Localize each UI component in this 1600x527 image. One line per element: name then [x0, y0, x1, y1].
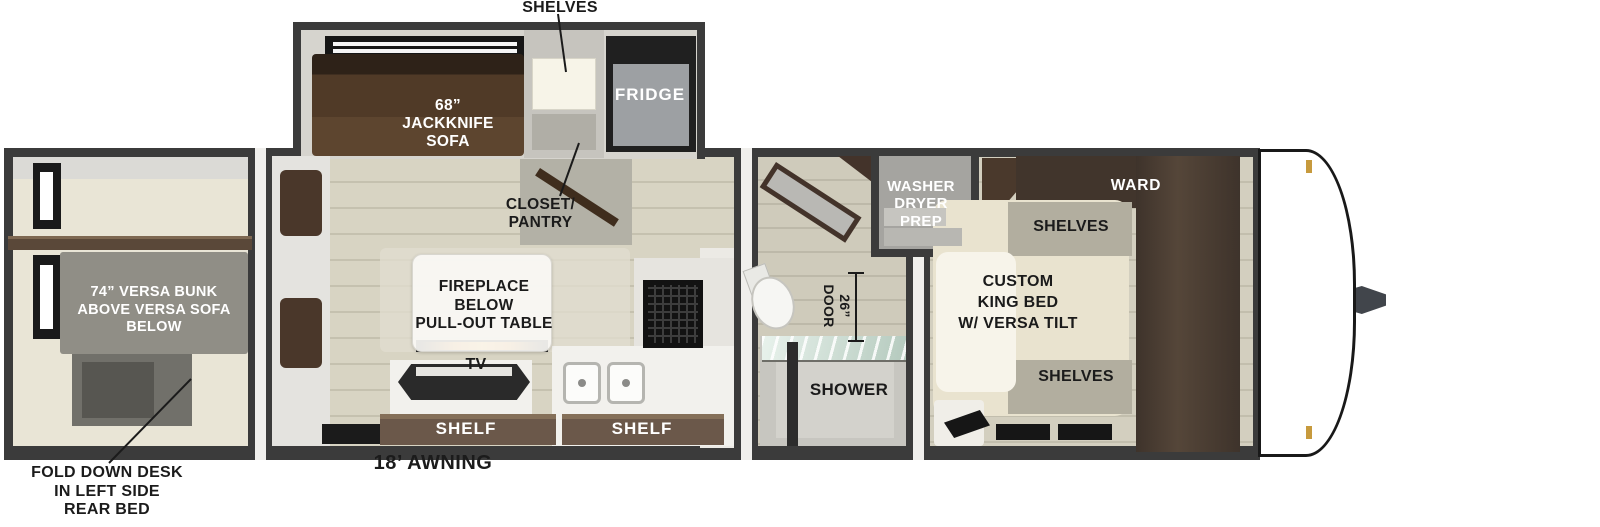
bedroom-mat-2	[996, 424, 1050, 440]
label-shelves-top: SHELVES	[505, 0, 615, 17]
label-awning: 18’ AWNING	[352, 452, 514, 475]
label-shower: SHOWER	[790, 380, 908, 400]
label-jackknife-sofa: 68” JACKKNIFE SOFA	[378, 97, 518, 150]
label-shelves-bed-bottom: SHELVES	[1017, 368, 1135, 386]
stove-grates	[648, 285, 698, 343]
label-ward: WARD	[1096, 177, 1176, 195]
label-tv: TV	[450, 356, 502, 374]
wardrobe-side	[1136, 156, 1240, 452]
stove	[643, 280, 703, 348]
floorplan-canvas: SHELVES 68” JACKKNIFE SOFA FRIDGE CLOSET…	[0, 0, 1600, 527]
sink-left	[563, 362, 601, 404]
label-washer-dryer-prep: WASHER DRYER PREP	[871, 178, 971, 230]
rear-shelf-bar	[8, 236, 252, 250]
label-shelf-right: SHELF	[572, 419, 712, 439]
shelves-cabinet-box	[532, 58, 596, 110]
bedroom-mat-3	[1058, 424, 1112, 440]
entertainment-cubby-top	[280, 170, 322, 236]
sink-left-drain	[578, 379, 586, 387]
label-custom-king-bed: CUSTOM KING BED W/ VERSA TILT	[920, 272, 1116, 334]
entry-mat	[322, 424, 380, 444]
front-cap	[1258, 149, 1356, 457]
fridge-door	[613, 64, 689, 146]
label-door-26: 26” DOOR	[819, 271, 853, 341]
bunk-window-upper-glass	[40, 172, 53, 220]
washer-box-step-2	[884, 228, 962, 246]
rear-desk-block	[82, 362, 154, 418]
marker-light-bottom	[1306, 426, 1312, 439]
sink-right-drain	[622, 379, 630, 387]
label-versa-bunk: 74” VERSA BUNK ABOVE VERSA SOFA BELOW	[48, 284, 260, 337]
label-closet-pantry: CLOSET/ PANTRY	[488, 196, 593, 232]
label-shelves-bed-top: SHELVES	[1012, 218, 1130, 236]
label-fireplace-table: FIREPLACE BELOW PULL-OUT TABLE	[395, 278, 573, 334]
label-shelf-left: SHELF	[396, 419, 536, 439]
entertainment-cubby-bottom	[280, 298, 322, 368]
label-fold-down-desk: FOLD DOWN DESK IN LEFT SIDE REAR BED	[18, 464, 196, 520]
marker-light-top	[1306, 160, 1312, 173]
sink-right	[607, 362, 645, 404]
bunk-window-upper	[33, 163, 61, 229]
label-fridge: FRIDGE	[604, 85, 696, 105]
shelves-cabinet-lower	[532, 114, 596, 150]
